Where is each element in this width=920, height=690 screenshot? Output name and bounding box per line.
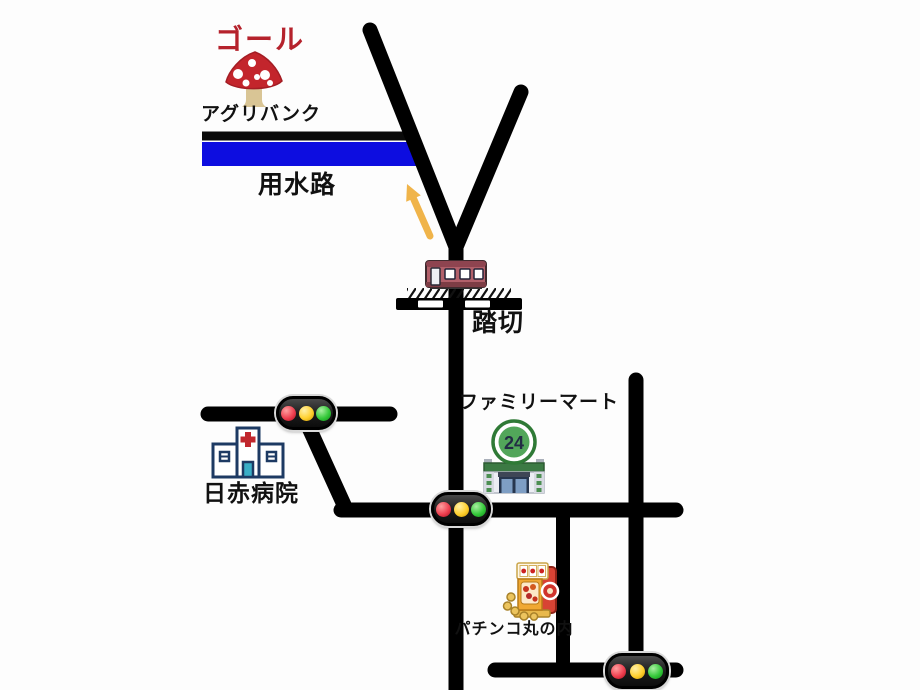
red-light-icon — [436, 502, 451, 517]
green-light-icon — [648, 664, 663, 679]
red-light-icon — [611, 664, 626, 679]
traffic-light-icon-bottom-right — [605, 653, 669, 689]
mushroom-icon — [226, 52, 282, 107]
hospital-icon — [213, 428, 283, 477]
store-sign-24: 24 — [504, 433, 524, 453]
familymart-label: ファミリーマート — [459, 393, 619, 414]
roads — [208, 30, 676, 690]
traffic-light-icon-left — [276, 396, 336, 430]
map-drawing-layer: 24 — [0, 0, 920, 690]
water-channel-label: 用水路 — [258, 172, 336, 200]
yellow-light-icon — [454, 502, 469, 517]
red-light-icon — [281, 406, 296, 421]
goal-label: ゴール — [215, 25, 305, 56]
road-upper-right-branch — [456, 92, 521, 247]
train-icon — [426, 261, 486, 289]
hospital-label: 日赤病院 — [203, 481, 299, 506]
water-channel — [202, 136, 421, 166]
yellow-light-icon — [630, 664, 645, 679]
green-light-icon — [471, 502, 486, 517]
agri-bank-label: アグリバンク — [201, 105, 321, 126]
yellow-light-icon — [299, 406, 314, 421]
railroad-crossing-label: 踏切 — [472, 310, 524, 338]
green-light-icon — [316, 406, 331, 421]
traffic-light-icon-center — [431, 492, 491, 526]
pachinko-label: パチンコ丸の内 — [454, 621, 573, 639]
convenience-store-icon: 24 — [484, 421, 544, 493]
road-diagonal-connector — [305, 419, 345, 507]
route-map: 24 — [0, 0, 920, 690]
slot-machine-icon — [504, 563, 559, 620]
railroad-crossing-bar-icon — [396, 288, 522, 310]
